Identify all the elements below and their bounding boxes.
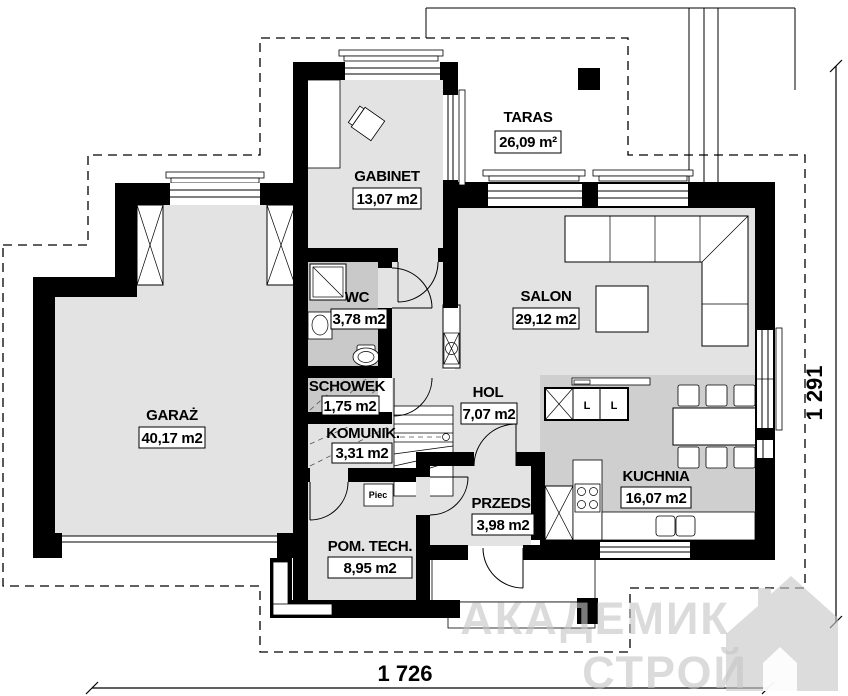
watermark-logo (726, 576, 838, 691)
chimney (578, 68, 600, 90)
coffee-table (596, 286, 648, 332)
kitchen-window-bottom (600, 542, 690, 558)
room-label-gabinet: GABINET 13,07 m2 (353, 168, 421, 209)
kuchnia-name: KUCHNIA (622, 468, 690, 485)
wall-komunik-pomtech-a (293, 468, 310, 482)
gabinet-window-right (443, 90, 465, 185)
gabinet-area: 13,07 m2 (357, 191, 418, 208)
room-label-komunik: KOMUNIK. 3,31 m2 (326, 425, 400, 463)
wall-przeds-top-a (416, 452, 474, 466)
watermark-line2: СТРОЙ (582, 647, 748, 696)
hol-area: 7,07 m2 (463, 406, 516, 423)
room-label-taras: TARAS 26,09 m² (495, 109, 561, 153)
wall-przeds-bottom-b (523, 545, 545, 560)
furnace-label: Piec (369, 490, 388, 500)
island-unit-label-2: L (611, 400, 618, 412)
schowek-area: 1,75 m2 (324, 398, 377, 415)
wall-garage-corner-left (33, 533, 62, 558)
room-label-kuchnia: KUCHNIA 16,07 m2 (621, 468, 691, 508)
komunik-area: 3,31 m2 (336, 445, 389, 462)
desk (304, 80, 340, 168)
room-label-garaz: GARAŻ 40,17 m2 (139, 407, 205, 448)
kitchen-window-right (757, 440, 773, 458)
pomtech-area: 8,95 m2 (344, 560, 397, 577)
taras-area: 26,09 m² (499, 134, 557, 151)
wc-area: 3,78 m2 (333, 311, 386, 328)
gabinet-name: GABINET (354, 168, 420, 185)
salon-window-right (757, 328, 782, 430)
island-shelf (572, 378, 650, 385)
garaz-name: GARAŻ (146, 407, 198, 424)
przeds-name: PRZEDS. (472, 495, 535, 512)
wall-garage-corner-right (277, 533, 295, 558)
wall-garage-upleft (115, 183, 137, 277)
salon-name: SALON (520, 288, 571, 305)
garaz-area: 40,17 m2 (142, 430, 203, 447)
floor-plan-drawing: L L (0, 0, 848, 696)
taras-name: TARAS (503, 109, 552, 126)
island-unit-label-1: L (584, 400, 591, 412)
wall-salon-left (443, 208, 458, 308)
garage-column-right (267, 205, 295, 285)
schowek-name: SCHOWEK (309, 378, 386, 395)
watermark-line1: АКАДЕМИК (460, 593, 730, 644)
gabinet-window-top (339, 50, 443, 80)
room-label-pomtech: POM. TECH. 8,95 m2 (328, 538, 413, 578)
watermark: АКАДЕМИК СТРОЙ (460, 576, 838, 696)
floor-plan-page: L L (0, 0, 848, 696)
tall-cabinet (545, 486, 573, 540)
komunik-name: KOMUNIK. (326, 425, 400, 442)
wall-garage-step (33, 277, 137, 297)
kitchen-island: L L (545, 388, 628, 420)
dimension-right: 1 291 (802, 60, 842, 628)
room-label-salon: SALON 29,12 m2 (513, 288, 579, 329)
fireplace (443, 305, 460, 368)
salon-area: 29,12 m2 (516, 311, 577, 328)
salon-window-2 (593, 170, 693, 206)
furnace: Piec (364, 484, 393, 506)
dining-table (673, 408, 757, 445)
wall-separator (293, 62, 308, 618)
kuchnia-area: 16,07 m2 (626, 490, 687, 507)
garage-gate (62, 536, 277, 542)
wall-przeds-bottom-a (416, 545, 468, 560)
salon-window-1 (483, 170, 585, 206)
wall-garage-left (33, 297, 55, 558)
washbasin (308, 312, 332, 339)
shower (310, 264, 346, 300)
dimension-height-label: 1 291 (802, 365, 827, 420)
hob (575, 484, 600, 512)
wc-name: WC (345, 289, 370, 306)
room-label-przeds: PRZEDS. 3,98 m2 (472, 495, 535, 535)
garage-column-left (137, 205, 163, 285)
dimension-width-label: 1 726 (377, 661, 432, 686)
hol-name: HOL (473, 384, 504, 401)
garage-window (166, 172, 264, 205)
wall-wc-schowek (302, 366, 392, 378)
pomtech-name: POM. TECH. (328, 538, 413, 555)
pergola (426, 8, 795, 183)
toilet (353, 345, 379, 366)
przeds-area: 3,98 m2 (477, 517, 530, 534)
